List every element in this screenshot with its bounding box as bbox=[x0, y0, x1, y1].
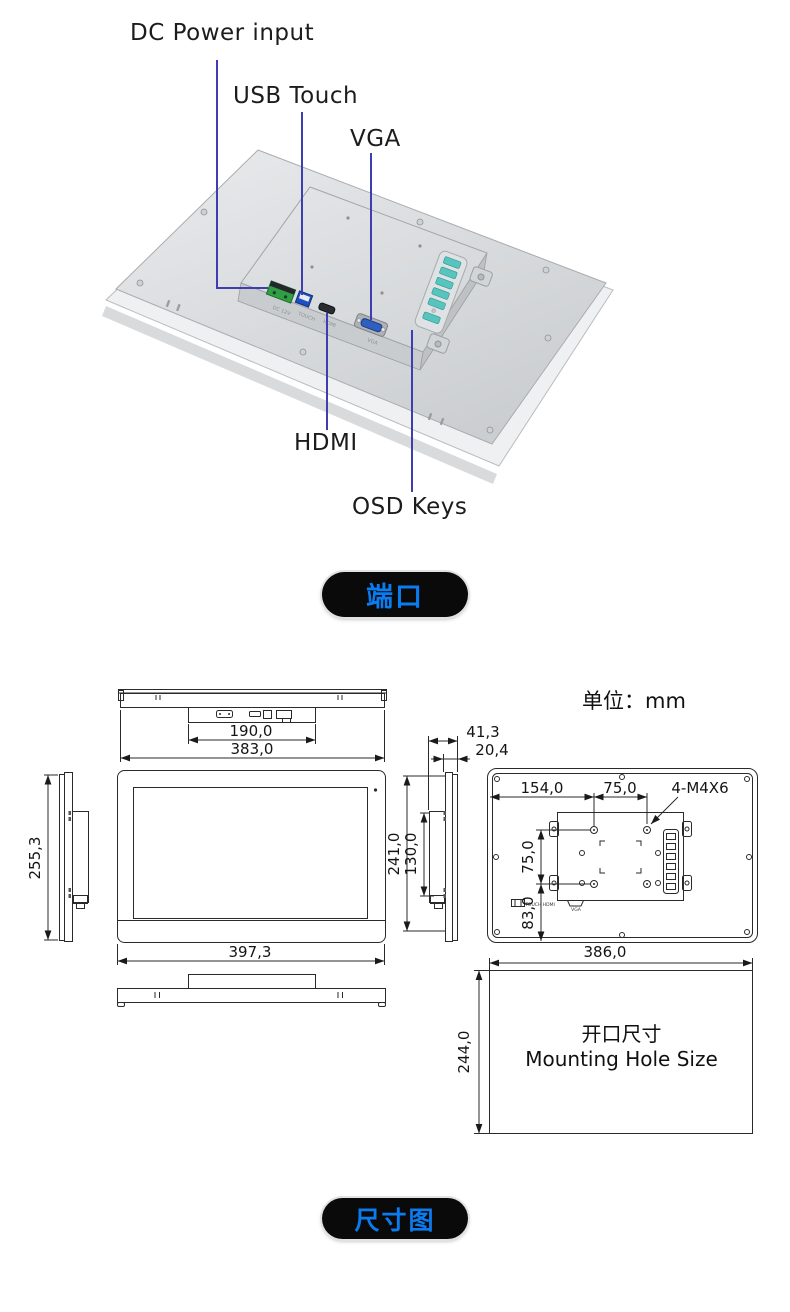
dim-hole-offset-bottom: 83,0 bbox=[519, 896, 537, 929]
cutout-caption: 开口尺寸 Mounting Hole Size bbox=[490, 1022, 753, 1072]
dim-top-outer-width: 383,0 bbox=[231, 740, 274, 758]
right-side-view-drawing: 41,3 20,4 241,0 130,0 bbox=[385, 723, 509, 942]
cutout-title-cn: 开口尺寸 bbox=[490, 1022, 753, 1047]
graphics-layer: DC 12V TOUCH HDMI VGA bbox=[0, 0, 790, 1312]
dim-depth-total: 41,3 bbox=[466, 723, 499, 741]
label-hdmi: HDMI bbox=[294, 430, 358, 456]
screw-spec-label: 4-M4X6 bbox=[671, 779, 728, 797]
rear-port-label-right: VGA bbox=[571, 907, 582, 913]
dim-top-inner-width: 190,0 bbox=[230, 722, 273, 740]
dim-side-box-height: 130,0 bbox=[402, 833, 420, 876]
dim-left-height: 255,3 bbox=[26, 837, 44, 880]
mounting-holes bbox=[580, 827, 661, 888]
bottom-view-drawing bbox=[118, 975, 386, 1007]
dim-side-height: 241,0 bbox=[385, 833, 403, 876]
label-usb-touch: USB Touch bbox=[233, 83, 358, 109]
front-view-drawing: 397,3 bbox=[118, 771, 386, 966]
badge-ports-text: 端口 bbox=[366, 575, 424, 614]
dim-depth-front: 20,4 bbox=[475, 741, 508, 759]
section-badge-dimensions: 尺寸图 bbox=[322, 1198, 468, 1239]
label-osd-keys: OSD Keys bbox=[352, 494, 467, 520]
unit-label: 单位：mm bbox=[582, 685, 686, 715]
badge-dimensions-text: 尺寸图 bbox=[354, 1201, 435, 1237]
rear-osd-block bbox=[664, 830, 679, 894]
dim-hole-pitch-h: 75,0 bbox=[603, 779, 636, 797]
product-spec-page: DC 12V TOUCH HDMI VGA bbox=[0, 0, 790, 1312]
left-side-view-drawing: 255,3 bbox=[26, 773, 89, 942]
dim-front-width: 397,3 bbox=[229, 943, 272, 961]
label-vga: VGA bbox=[350, 126, 401, 152]
dim-cutout-height: 244,0 bbox=[455, 1031, 473, 1074]
rear-view-drawing: TOUCH HDMI VGA 154,0 75,0 4-M4X6 75,0 bbox=[488, 769, 758, 943]
side-slots bbox=[69, 811, 72, 898]
dim-hole-offset-left: 154,0 bbox=[521, 779, 564, 797]
dim-hole-pitch-v: 75,0 bbox=[519, 840, 537, 873]
cutout-title-en: Mounting Hole Size bbox=[490, 1047, 753, 1072]
rear-vesa-ears bbox=[550, 822, 692, 891]
dim-cutout-width: 386,0 bbox=[584, 943, 627, 961]
front-led-dot bbox=[374, 788, 377, 791]
section-badge-ports: 端口 bbox=[322, 572, 468, 617]
label-dc-power-input: DC Power input bbox=[130, 20, 314, 46]
monitor-back-photo: DC 12V TOUCH HDMI VGA bbox=[102, 60, 613, 492]
top-view-drawing: 190,0 383,0 bbox=[119, 690, 387, 763]
